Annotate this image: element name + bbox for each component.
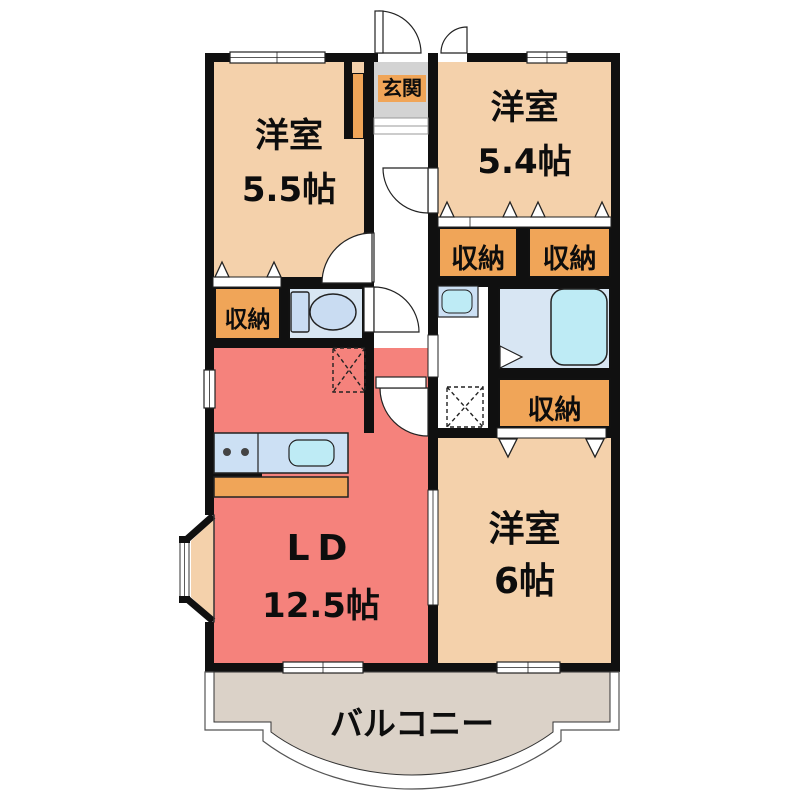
room-western-1-name: 洋室 <box>214 108 364 157</box>
wall <box>467 53 620 62</box>
storage-d-label: 収納 <box>498 388 611 427</box>
wall <box>214 470 262 478</box>
wall <box>498 370 611 378</box>
living-dining-size: 12.5帖 <box>214 578 428 627</box>
washroom <box>438 287 488 428</box>
room-western-1-size: 5.5帖 <box>214 162 364 211</box>
wall <box>428 53 438 438</box>
wall <box>488 287 498 430</box>
wall <box>611 53 620 672</box>
wall <box>281 287 288 348</box>
storage-b-label: 収納 <box>438 237 518 276</box>
balcony-label: バルコニー <box>312 697 512 745</box>
wall <box>205 53 214 515</box>
bay-window <box>179 515 214 622</box>
wall <box>428 278 620 287</box>
entrance-door-arc <box>375 11 467 53</box>
wall <box>518 227 528 278</box>
storage-a-label: 収納 <box>214 300 281 334</box>
storage-c-label: 収納 <box>528 237 611 276</box>
wall <box>428 428 611 438</box>
room-western-3-name: 洋室 <box>438 500 611 552</box>
wall <box>205 53 378 62</box>
room-western-3-size: 6帖 <box>438 552 611 604</box>
room-western-2-size: 5.4帖 <box>438 134 611 183</box>
wall <box>205 663 620 672</box>
entrance-label: 玄関 <box>378 75 426 102</box>
wall <box>364 62 374 433</box>
wall <box>281 277 364 287</box>
living-dining-name: LD <box>214 528 428 569</box>
wall <box>428 438 438 663</box>
bathroom <box>498 287 611 370</box>
floor-plan: 洋室 5.5帖 洋室 5.4帖 玄関 収納 収納 収納 収納 LD 12.5帖 … <box>0 0 800 800</box>
toilet-room <box>288 287 364 340</box>
wall <box>205 340 374 348</box>
room-western-2-name: 洋室 <box>438 80 611 129</box>
